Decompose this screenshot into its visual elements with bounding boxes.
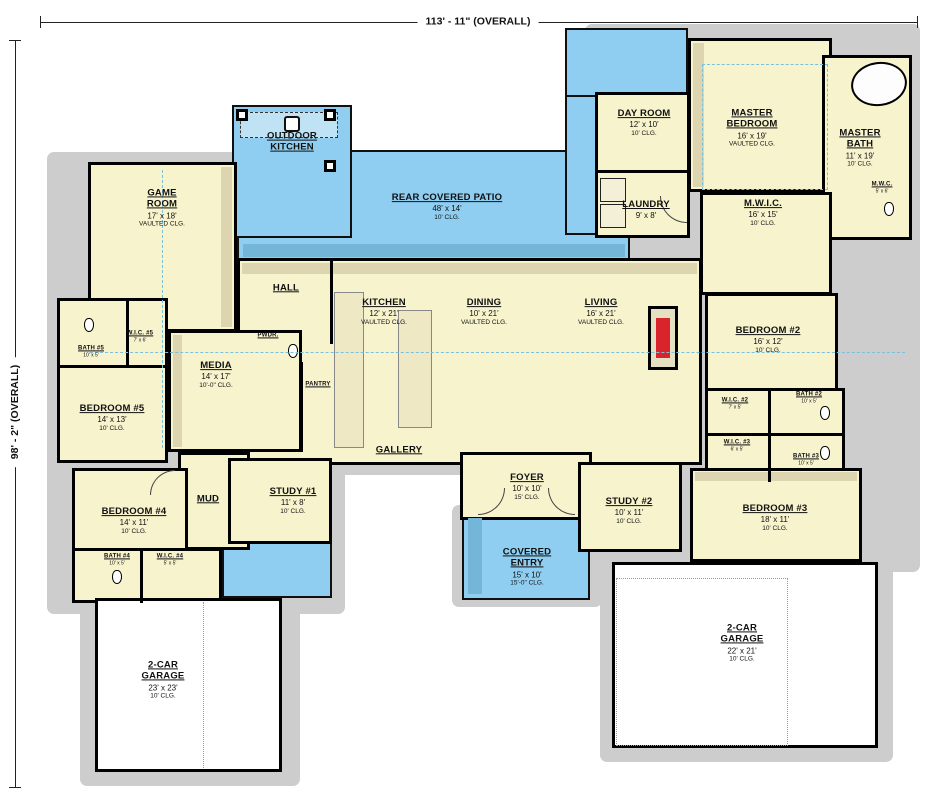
room-label-pwdr: PWDR. xyxy=(251,332,285,339)
left-dimension-tick-top xyxy=(9,40,21,41)
room-label-hall: HALL xyxy=(261,282,311,293)
room-label-outdoor-kitchen: OUTDOOR KITCHEN xyxy=(250,131,334,154)
game-room-shade xyxy=(221,167,232,327)
room-label-mwic: M.W.I.C. 16' x 15' 10' CLG. xyxy=(728,198,798,228)
kitchen-island xyxy=(398,310,432,428)
bedroom3-shade xyxy=(695,472,857,481)
toilet-bath2-icon xyxy=(820,406,830,420)
room-label-gallery: GALLERY xyxy=(364,444,434,455)
wall-baths-horizontal xyxy=(705,433,845,436)
room-label-bedroom3: BEDROOM #3 18' x 11' 10' CLG. xyxy=(730,503,820,533)
room-label-living: LIVING 16' x 21' VAULTED CLG. xyxy=(566,297,636,327)
room-label-bath3: BATH #3 10' x 5' xyxy=(786,453,826,466)
room-label-mud: MUD xyxy=(186,493,230,504)
band-shade-top xyxy=(242,263,697,274)
room-label-bedroom4: BEDROOM #4 14' x 11' 10' CLG. xyxy=(92,506,176,536)
floor-plan: 113' - 11" (OVERALL) 98' - 2" (OVERALL) xyxy=(0,0,926,800)
patio-post xyxy=(324,160,336,172)
wall-hall-kitchen xyxy=(330,260,333,344)
bath4-wic4-area xyxy=(72,548,222,603)
top-dimension-label: 113' - 11" (OVERALL) xyxy=(418,15,539,27)
room-label-kitchen: KITCHEN 12' x 21' VAULTED CLG. xyxy=(349,297,419,327)
patio-shade xyxy=(243,244,625,257)
room-label-bath2: BATH #2 10' x 5' xyxy=(789,391,829,404)
room-label-garage-right: 2-CAR GARAGE 22' x 21' 10' CLG. xyxy=(710,622,774,663)
room-label-bath4: BATH #4 10' x 5' xyxy=(97,553,137,566)
room-label-bedroom2: BEDROOM #2 16' x 12' 10' CLG. xyxy=(726,325,810,355)
room-label-dining: DINING 10' x 21' VAULTED CLG. xyxy=(449,297,519,327)
room-label-study1: STUDY #1 11' x 8' 10' CLG. xyxy=(258,486,328,516)
room-label-bath5: BATH #5 10' x 5' xyxy=(71,345,111,358)
room-label-game-room: GAME ROOM 17' x 18' VAULTED CLG. xyxy=(135,187,189,228)
toilet-mwc-icon xyxy=(884,202,894,216)
toilet-bath5-icon xyxy=(84,318,94,332)
wall-pantry xyxy=(300,362,303,452)
patio-post xyxy=(236,109,248,121)
room-label-pantry: PANTRY xyxy=(296,381,340,388)
room-label-laundry: LAUNDRY 9' x 8' xyxy=(611,199,681,221)
room-label-wic5: W.I.C. #5 7' x 6' xyxy=(120,330,160,343)
toilet-pwdr-icon xyxy=(288,344,298,358)
room-label-foyer: FOYER 10' x 10' 15' CLG. xyxy=(497,472,557,502)
room-label-master-bedroom: MASTER BEDROOM 16' x 19' VAULTED CLG. xyxy=(714,107,790,148)
room-label-study2: STUDY #2 10' x 11' 10' CLG. xyxy=(594,496,664,526)
room-label-wic3: W.I.C. #3 6' x 5' xyxy=(717,439,757,452)
left-dimension-label: 98' - 2" (OVERALL) xyxy=(9,357,21,467)
wall-baths-vertical xyxy=(768,388,771,482)
left-dimension-tick-bottom xyxy=(9,787,21,788)
grill-icon xyxy=(284,116,300,132)
room-label-wic4: W.I.C. #4 5' x 5' xyxy=(150,553,190,566)
toilet-bath4-icon xyxy=(112,570,122,584)
wall-bath4-divider xyxy=(140,548,143,603)
top-dimension-tick-right xyxy=(917,16,918,28)
top-dimension-tick-left xyxy=(40,16,41,28)
room-label-day-room: DAY ROOM 12' x 10' 10' CLG. xyxy=(602,108,686,138)
room-label-bedroom5: BEDROOM #5 14' x 13' 10' CLG. xyxy=(70,403,154,433)
patio-post xyxy=(324,109,336,121)
room-label-mwc: M.W.C. 5' x 6' xyxy=(862,181,902,194)
room-label-media: MEDIA 14' x 17' 10'-0" CLG. xyxy=(181,360,251,390)
garage-left-bay-divider xyxy=(203,602,205,768)
room-label-covered-entry: COVERED ENTRY 15' x 10' 15'-0" CLG. xyxy=(492,546,562,587)
patio-north-area xyxy=(565,28,688,97)
room-label-garage-left: 2-CAR GARAGE 23' x 23' 10' CLG. xyxy=(131,659,195,700)
entry-shade xyxy=(468,518,482,594)
room-label-wic2: W.I.C. #2 7' x 5' xyxy=(715,397,755,410)
media-area xyxy=(168,330,302,452)
room-label-rear-covered-patio: REAR COVERED PATIO 48' x 14' 10' CLG. xyxy=(337,192,557,222)
room-label-master-bath: MASTER BATH 11' x 19' 10' CLG. xyxy=(831,127,889,168)
